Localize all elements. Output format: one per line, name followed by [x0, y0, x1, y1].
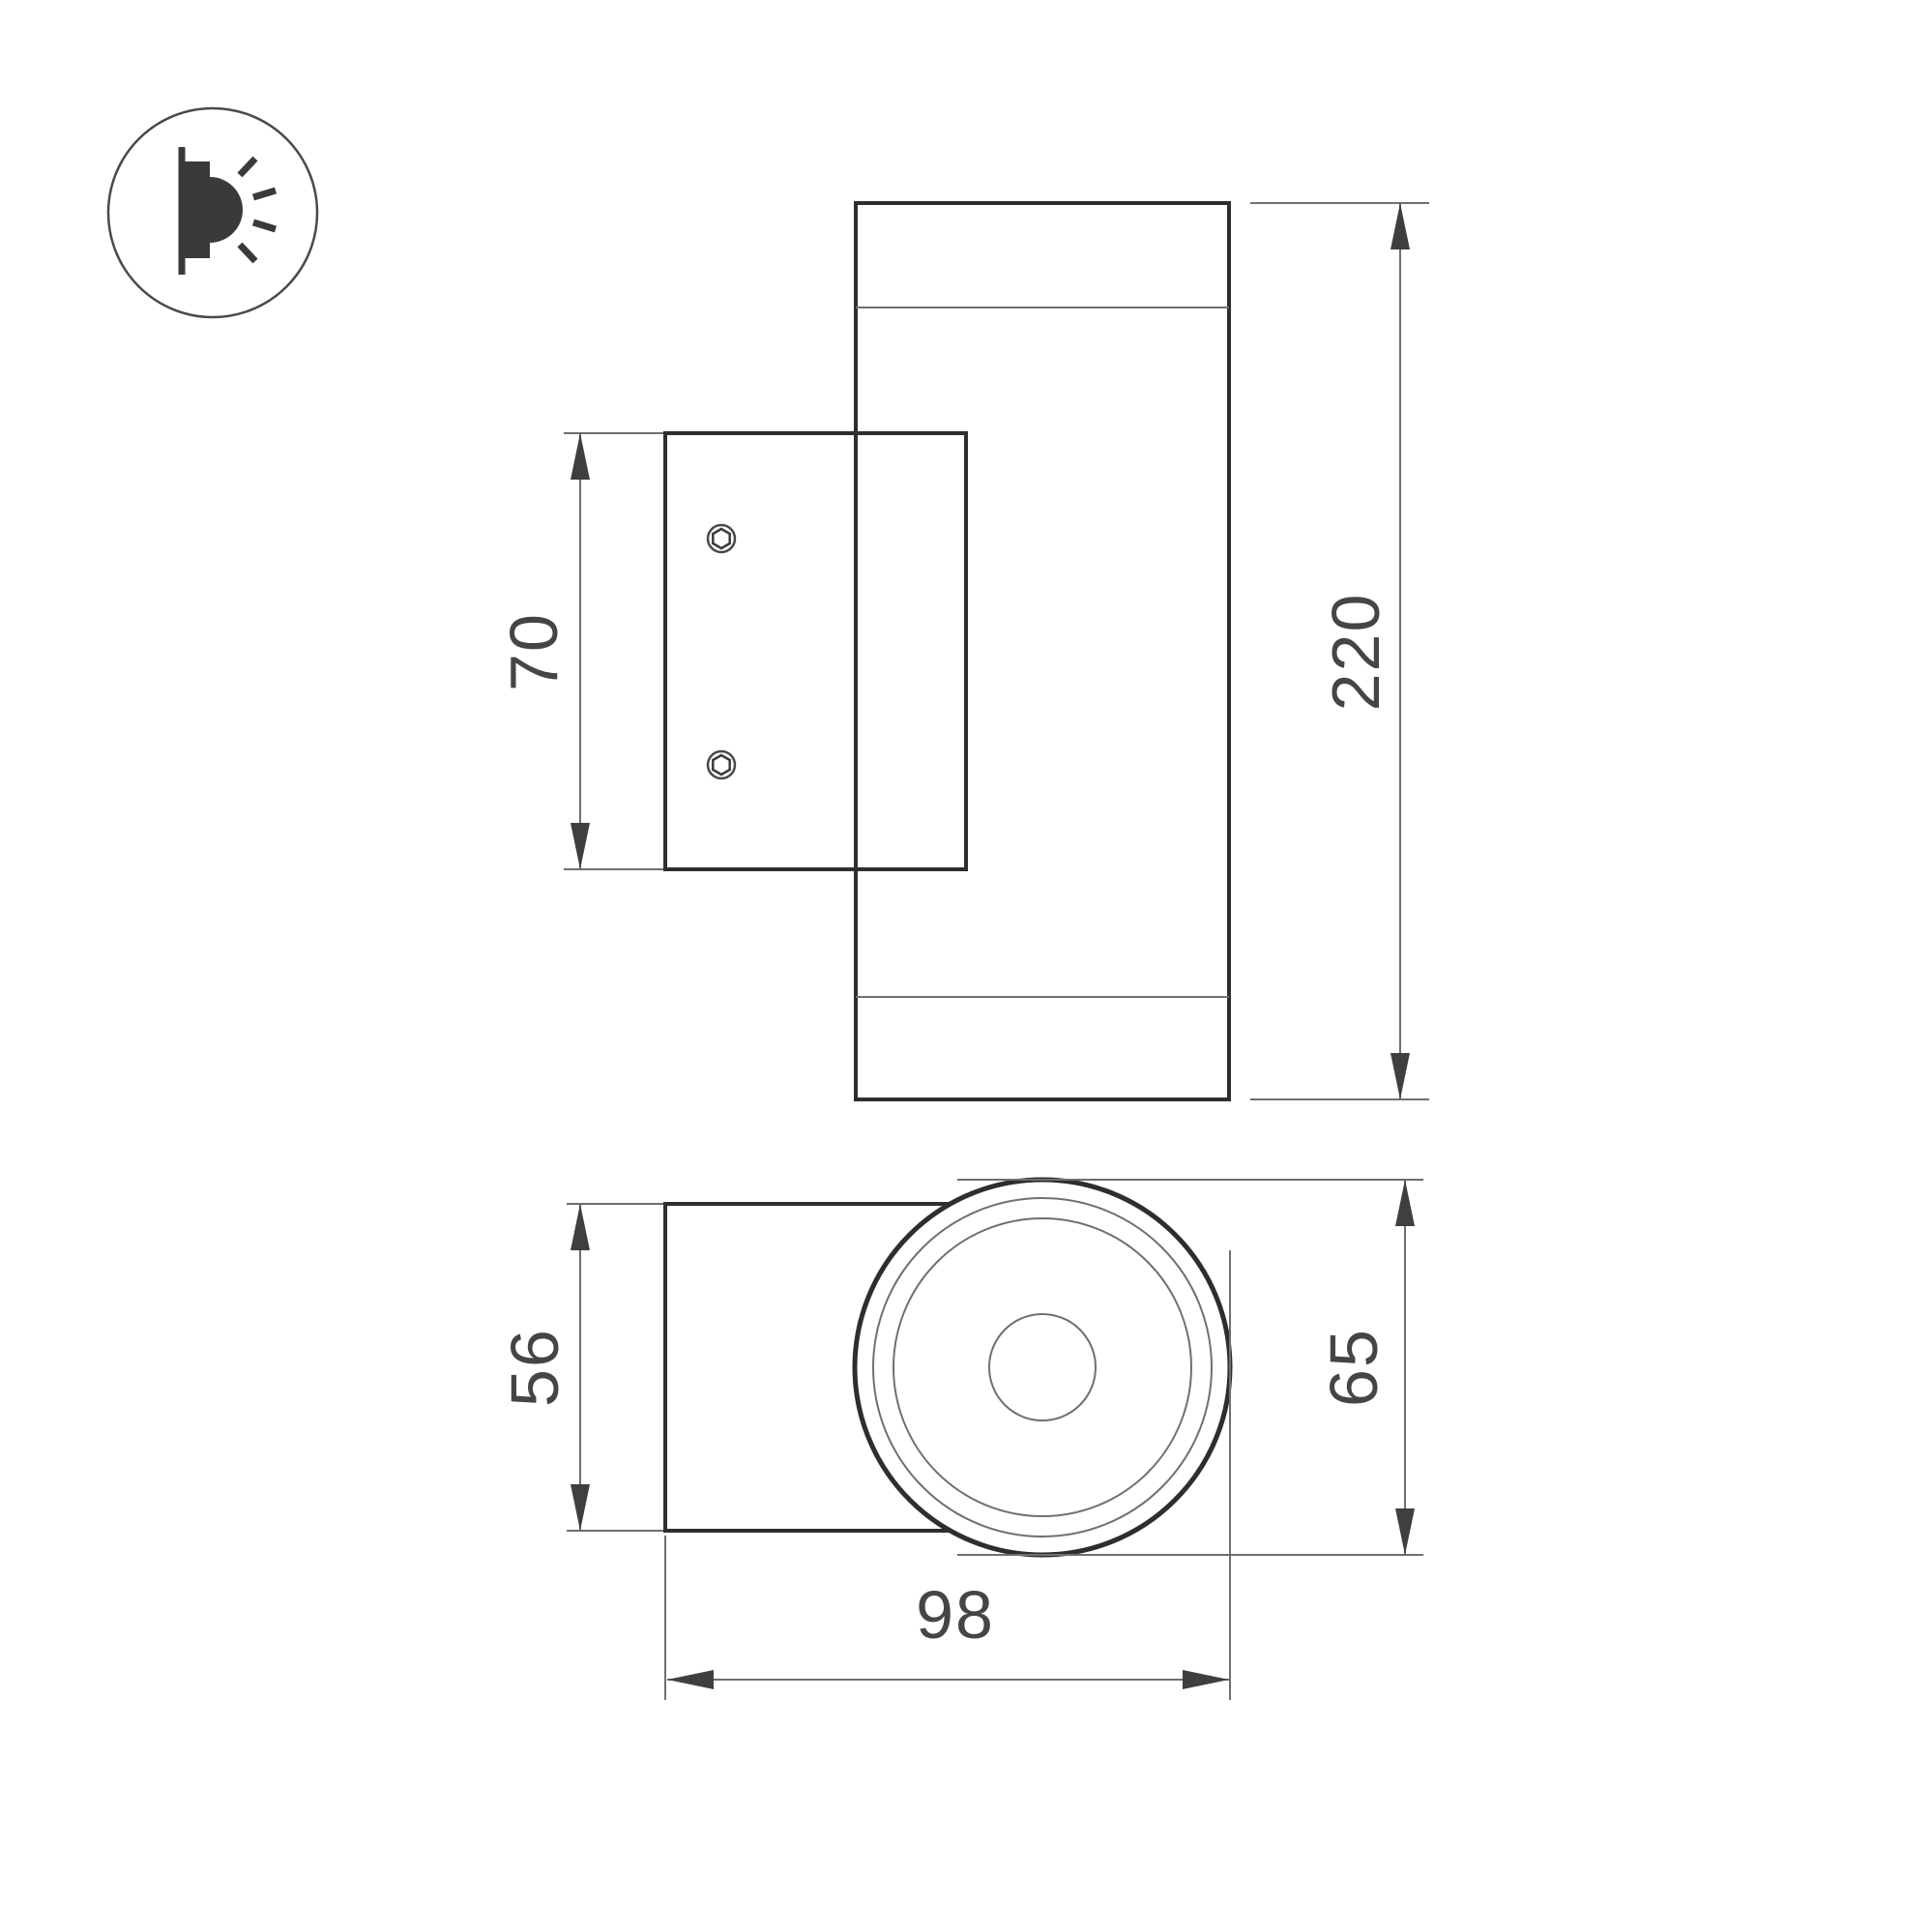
side-view	[665, 203, 1229, 1099]
overall-depth-label: 98	[916, 1577, 995, 1653]
light-rays	[240, 159, 276, 261]
screw-bottom	[708, 751, 735, 778]
screw-top	[708, 525, 735, 552]
light-beam-half-circle	[210, 177, 243, 243]
dimension-overall-height: 220	[1250, 203, 1429, 1099]
lamp-body	[185, 161, 210, 258]
top-view	[665, 1180, 1230, 1555]
plate-height-label: 70	[496, 612, 571, 691]
wall-light-icon	[108, 108, 317, 317]
dimension-drawing-page: 70 220 56	[0, 0, 1932, 1932]
mounting-plate	[665, 433, 966, 869]
technical-drawing: 70 220 56	[0, 0, 1932, 1932]
dimension-body-depth: 56	[497, 1204, 663, 1531]
dimension-plate-height: 70	[496, 433, 663, 869]
cylinder-body	[856, 203, 1229, 1099]
head-outer-circle	[855, 1180, 1230, 1555]
overall-height-label: 220	[1318, 593, 1393, 712]
head-diameter-label: 65	[1316, 1328, 1391, 1407]
body-depth-label: 56	[497, 1328, 572, 1407]
